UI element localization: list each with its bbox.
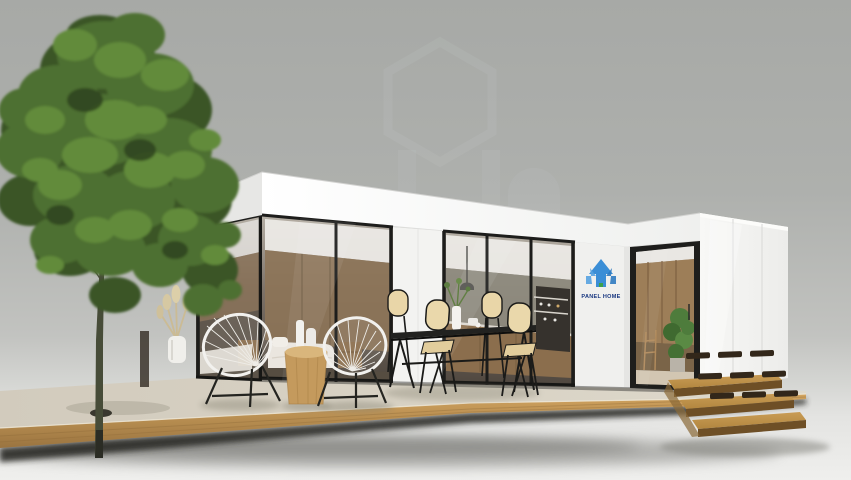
tree-shadow [66, 401, 170, 415]
logo-wall: PANEL HOME [575, 242, 630, 388]
scene-panel-home-render: PANEL HOME [0, 0, 851, 480]
building-side-wall [700, 213, 788, 391]
logo-wordmark: PANEL HOME [581, 294, 620, 300]
render-canvas: PANEL HOME [0, 0, 851, 480]
table-vase [452, 306, 461, 330]
logo-green-mark [599, 283, 603, 287]
